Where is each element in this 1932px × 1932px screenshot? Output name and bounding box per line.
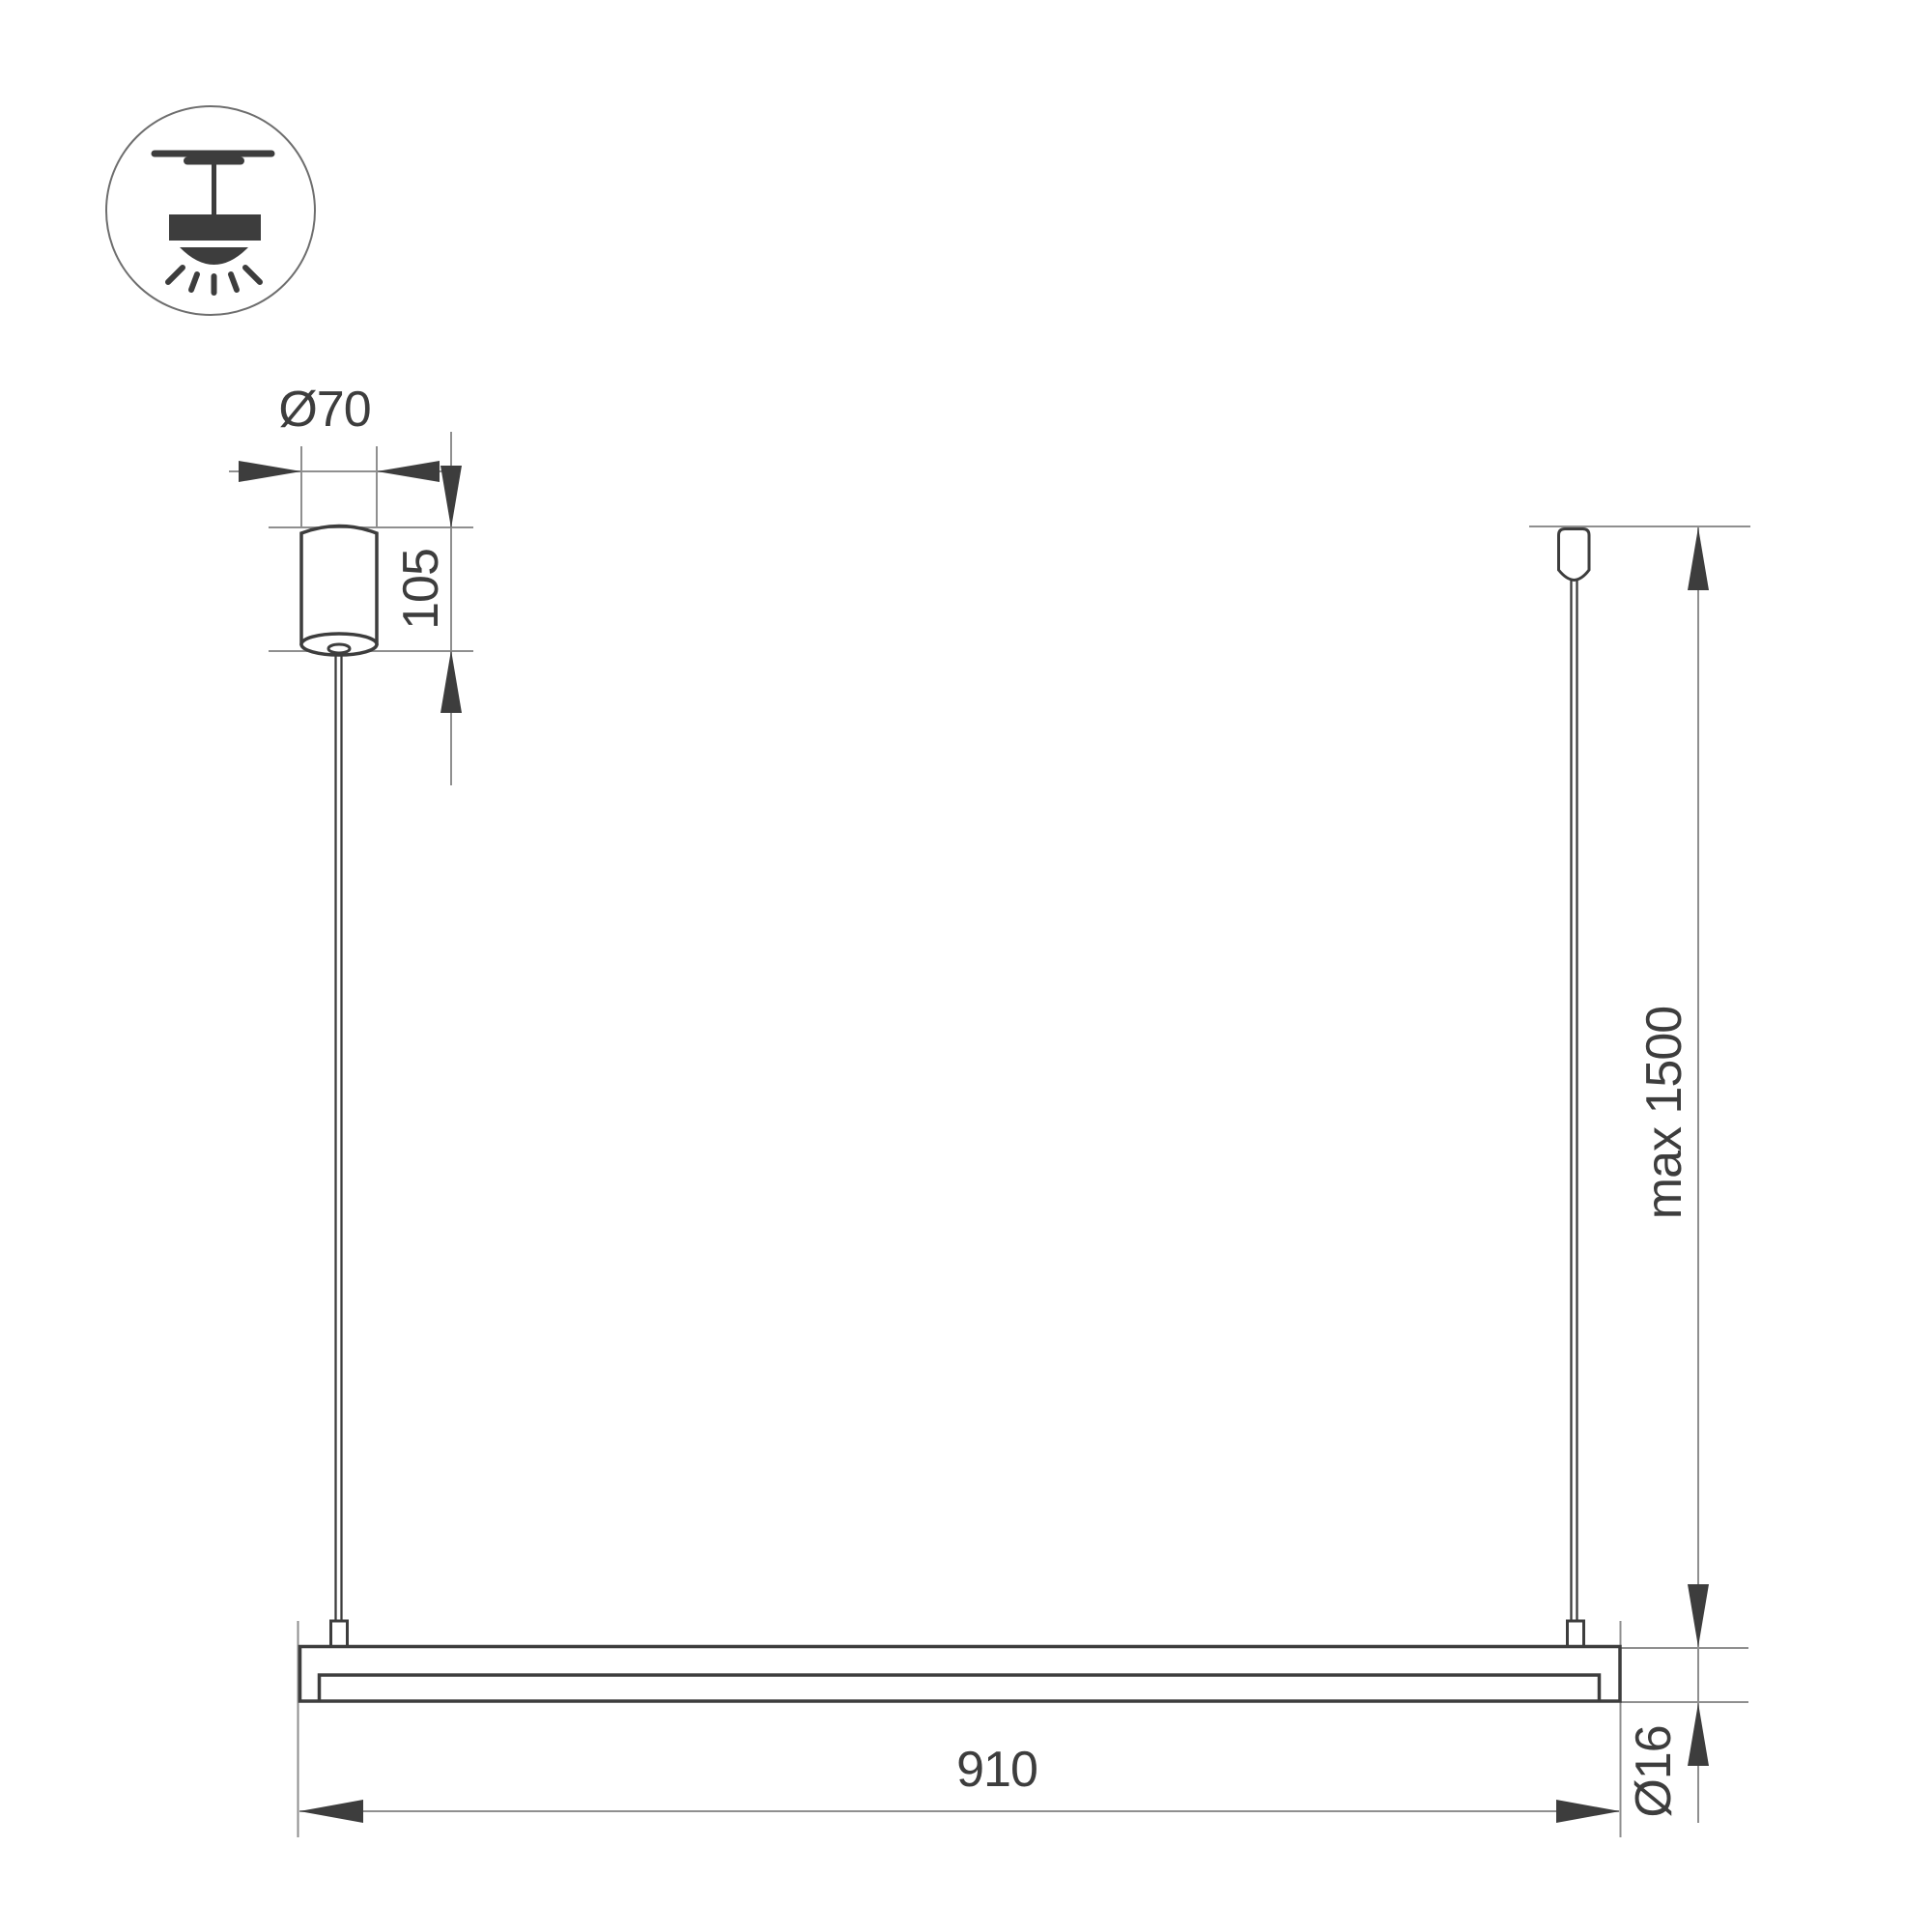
arrowhead-up	[1688, 1703, 1709, 1766]
drawing-canvas: Ø70 105 910 max 1500	[0, 0, 1932, 1932]
arrowhead-left	[299, 1800, 363, 1823]
canopy	[301, 526, 377, 656]
technical-drawing: Ø70 105 910 max 1500	[0, 0, 1932, 1932]
dim-suspension-length: max 1500	[1620, 527, 1748, 1823]
canopy-body	[301, 526, 377, 646]
arrowhead-down	[1688, 1584, 1709, 1647]
arrowhead-down	[440, 466, 462, 528]
arrowhead-right	[239, 461, 301, 482]
dim-label-canopy-diameter: Ø70	[278, 382, 370, 438]
arrowhead-right	[1556, 1800, 1620, 1823]
suspension-cable-right	[1572, 580, 1577, 1623]
cable-connector-right	[1568, 1621, 1584, 1648]
icon-circle	[106, 106, 315, 315]
dim-canopy-diameter: Ø70	[229, 382, 441, 528]
grip-body	[1559, 529, 1590, 581]
dim-label-canopy-height: 105	[393, 549, 449, 630]
arrowhead-up	[1688, 527, 1709, 590]
dim-label-suspension-length: max 1500	[1636, 1007, 1692, 1219]
ceiling-pendant-light-icon	[106, 106, 315, 315]
suspension-cable-left	[336, 652, 342, 1623]
dim-label-fixture-length: 910	[956, 1742, 1037, 1798]
dim-tube-diameter: Ø16	[1626, 1703, 1709, 1818]
arrowhead-up	[440, 650, 462, 713]
light-bar	[300, 1647, 1621, 1702]
arrowhead-left	[377, 461, 440, 482]
dim-label-tube-diameter: Ø16	[1626, 1725, 1682, 1817]
icon-lamp-body	[169, 214, 261, 241]
cable-gland	[328, 644, 350, 653]
cable-grip-right	[1559, 529, 1590, 581]
cable-connector-left	[331, 1621, 348, 1648]
dim-canopy-height: 105	[269, 432, 473, 785]
